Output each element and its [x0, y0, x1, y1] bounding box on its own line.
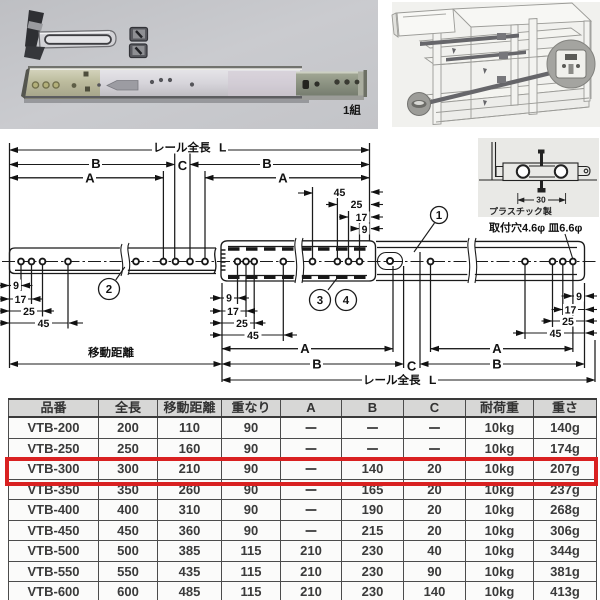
svg-text:45: 45	[334, 187, 346, 199]
svg-text:L: L	[429, 373, 436, 387]
svg-text:移動距離: 移動距離	[88, 347, 134, 360]
svg-text:レール全長: レール全長	[363, 373, 421, 387]
svg-text:45: 45	[247, 330, 259, 342]
svg-text:25: 25	[351, 199, 363, 211]
svg-text:A: A	[278, 171, 288, 186]
svg-text:取付穴4.6φ 皿6.6φ: 取付穴4.6φ 皿6.6φ	[489, 222, 583, 235]
svg-text:9: 9	[576, 291, 582, 303]
svg-text:25: 25	[23, 306, 35, 318]
svg-text:2: 2	[106, 284, 112, 296]
svg-text:9: 9	[362, 224, 368, 236]
svg-text:45: 45	[550, 328, 562, 340]
svg-text:B: B	[91, 156, 100, 171]
svg-text:1組: 1組	[343, 104, 361, 117]
svg-text:17: 17	[565, 305, 577, 317]
svg-text:30: 30	[536, 195, 546, 205]
svg-text:C: C	[178, 158, 188, 173]
svg-text:B: B	[262, 156, 271, 171]
svg-text:A: A	[85, 171, 95, 186]
svg-text:レール全長: レール全長	[153, 141, 211, 155]
svg-text:B: B	[492, 357, 501, 372]
svg-text:A: A	[492, 341, 502, 356]
svg-text:17: 17	[15, 294, 27, 306]
svg-text:25: 25	[562, 316, 574, 328]
svg-text:3: 3	[317, 295, 323, 307]
svg-text:L: L	[219, 141, 226, 155]
svg-text:17: 17	[356, 212, 368, 224]
svg-text:1: 1	[436, 210, 443, 222]
svg-text:B: B	[312, 357, 321, 372]
svg-text:17: 17	[227, 306, 239, 318]
svg-text:C: C	[407, 359, 417, 374]
svg-text:4: 4	[343, 295, 350, 307]
svg-text:9: 9	[13, 280, 19, 292]
svg-text:45: 45	[38, 318, 50, 330]
svg-text:プラスチック製: プラスチック製	[489, 207, 552, 217]
svg-text:25: 25	[236, 318, 248, 330]
svg-text:A: A	[300, 341, 310, 356]
svg-text:9: 9	[226, 293, 232, 305]
